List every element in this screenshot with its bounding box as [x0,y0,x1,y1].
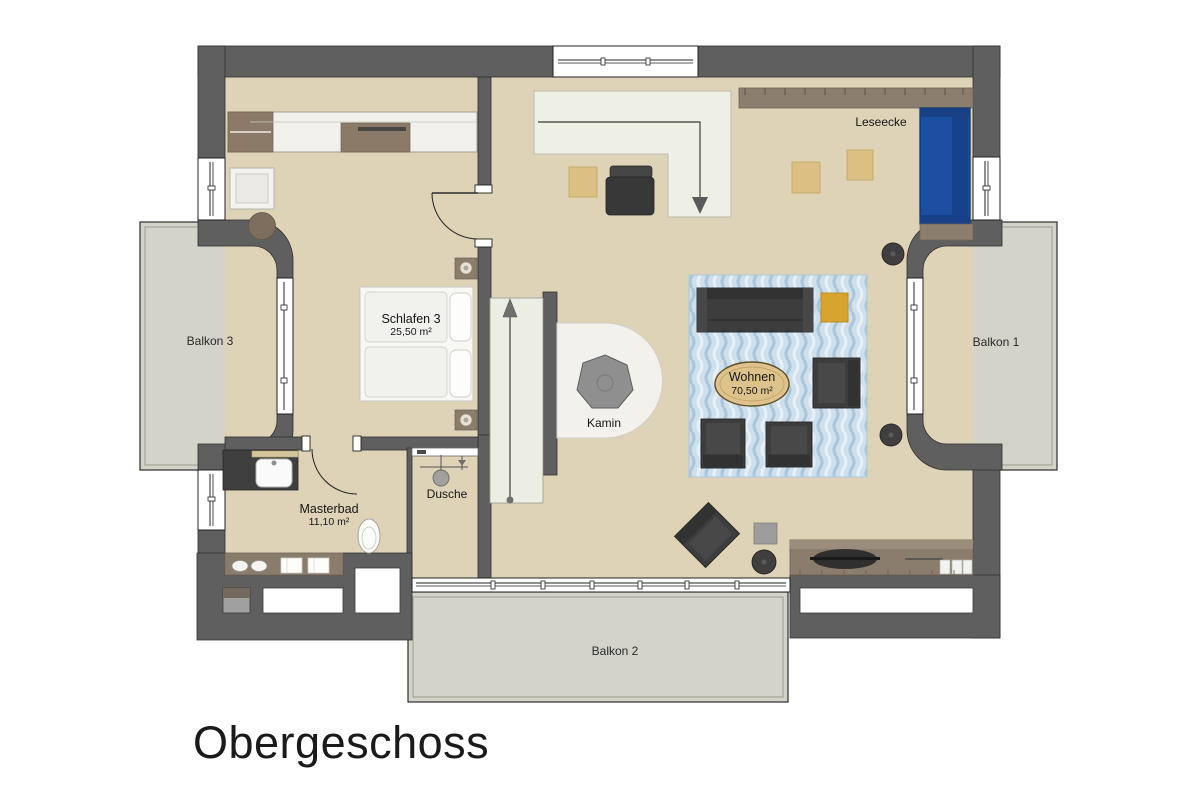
label-wohnen-name: Wohnen [729,370,775,384]
vanity [225,553,343,575]
wall-top-right [698,46,1000,77]
label-masterbad-area: 11,10 m² [309,516,350,528]
wall-left-upper [198,46,225,160]
floor-cushion [569,167,597,197]
bathtub [223,450,298,490]
floorplan-drawing [0,0,1200,800]
tub-faucet-icon [272,461,277,466]
bedroom-armchair [230,168,274,209]
nightstand-bottom [455,410,477,430]
label-masterbad-name: Masterbad [299,502,358,516]
floor-cushion [847,150,873,180]
label-dusche: Dusche [427,487,468,501]
bookshelf-top [739,88,973,108]
label-balkon2: Balkon 2 [592,644,639,658]
shelf-below-sofa [920,224,973,240]
window-left-upper [198,158,225,220]
stair-start-dot [507,497,514,504]
books [963,560,972,574]
window-balcony3 [277,278,293,414]
sideboard [790,540,973,575]
shaft-opening-top [223,588,250,598]
armchair-bottom-left [701,419,745,468]
window-left-lower [198,470,225,530]
armchair-right [813,358,860,408]
wall-top-left [198,46,553,77]
reading-sofa-blue [920,108,970,224]
label-leseecke: Leseecke [855,115,906,129]
label-schlafen3-name: Schlafen 3 [381,312,440,326]
sink [251,561,267,572]
wall-masterbad-top-left [225,437,310,450]
armchair-bottom-right [766,422,812,467]
floor-title: Obergeschoss [193,717,489,769]
wall-bedroom-divider-top [478,77,491,192]
window-top [553,46,698,77]
books [952,560,962,574]
wall-right-upper [973,46,1000,159]
sink [232,561,248,572]
double-bed [360,287,473,401]
pouf [249,213,276,240]
wall-bedroom-divider-bottom [478,435,491,580]
books [940,560,950,574]
yellow-side-table [821,293,848,322]
wall-bedroom-divider-mid [478,241,491,435]
office-chair [606,166,654,215]
label-wohnen-area: 70,50 m² [731,385,772,397]
sofa [697,288,813,332]
window-right-upper [973,157,1000,220]
label-balkon3: Balkon 3 [187,334,234,348]
window-bottom-right [800,588,973,613]
niche-opening-1 [263,588,343,613]
nightstand-top [455,258,477,279]
window-balcony1 [907,278,923,414]
window-band-balcony2 [412,578,790,592]
pillow [450,293,471,341]
niche-opening-2 [355,568,400,613]
floor-cushion [792,162,820,193]
wardrobe [228,112,477,152]
wall-stair-bar [543,292,557,475]
gray-side-table [754,523,777,544]
towel [308,558,329,573]
label-balkon1: Balkon 1 [973,335,1020,349]
shower-head-icon [433,470,449,486]
floorplan-canvas: Schlafen 3 25,50 m² Masterbad 11,10 m² W… [0,0,1200,800]
wardrobe-handle [358,127,406,131]
coffee-table-oval [715,362,789,406]
staircase [490,298,543,504]
wall-left-lower [198,530,225,555]
toilet [358,519,380,553]
towel [281,558,302,573]
label-schlafen3-area: 25,50 m² [390,326,431,338]
pillow [450,350,471,397]
label-kamin: Kamin [587,416,621,430]
